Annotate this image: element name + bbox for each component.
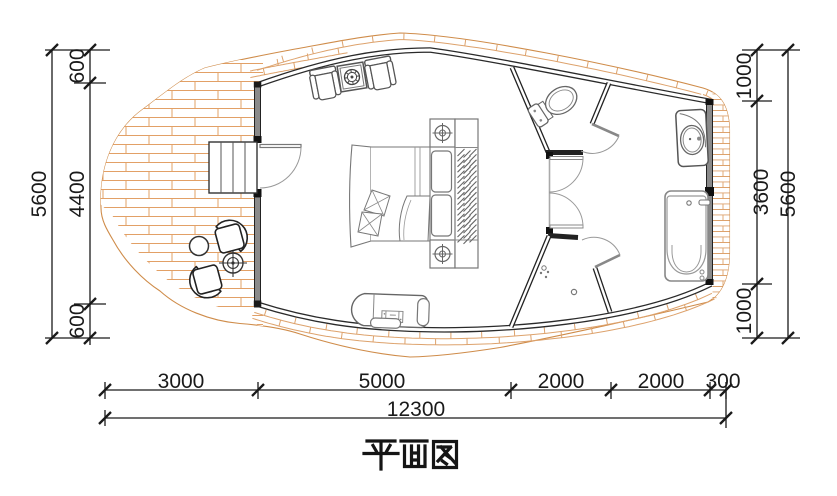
svg-text:300: 300 bbox=[705, 370, 740, 393]
svg-text:600: 600 bbox=[66, 303, 89, 338]
svg-text:2000: 2000 bbox=[538, 370, 585, 393]
svg-text:4400: 4400 bbox=[66, 171, 89, 218]
svg-text:5600: 5600 bbox=[777, 171, 800, 218]
svg-text:3600: 3600 bbox=[750, 169, 773, 216]
svg-text:1000: 1000 bbox=[733, 53, 756, 100]
svg-text:5000: 5000 bbox=[359, 370, 406, 393]
svg-text:3000: 3000 bbox=[158, 370, 205, 393]
svg-text:1000: 1000 bbox=[733, 288, 756, 335]
svg-text:2000: 2000 bbox=[638, 370, 685, 393]
svg-text:600: 600 bbox=[66, 48, 89, 83]
svg-text:5600: 5600 bbox=[28, 171, 51, 218]
svg-text:12300: 12300 bbox=[387, 398, 445, 421]
